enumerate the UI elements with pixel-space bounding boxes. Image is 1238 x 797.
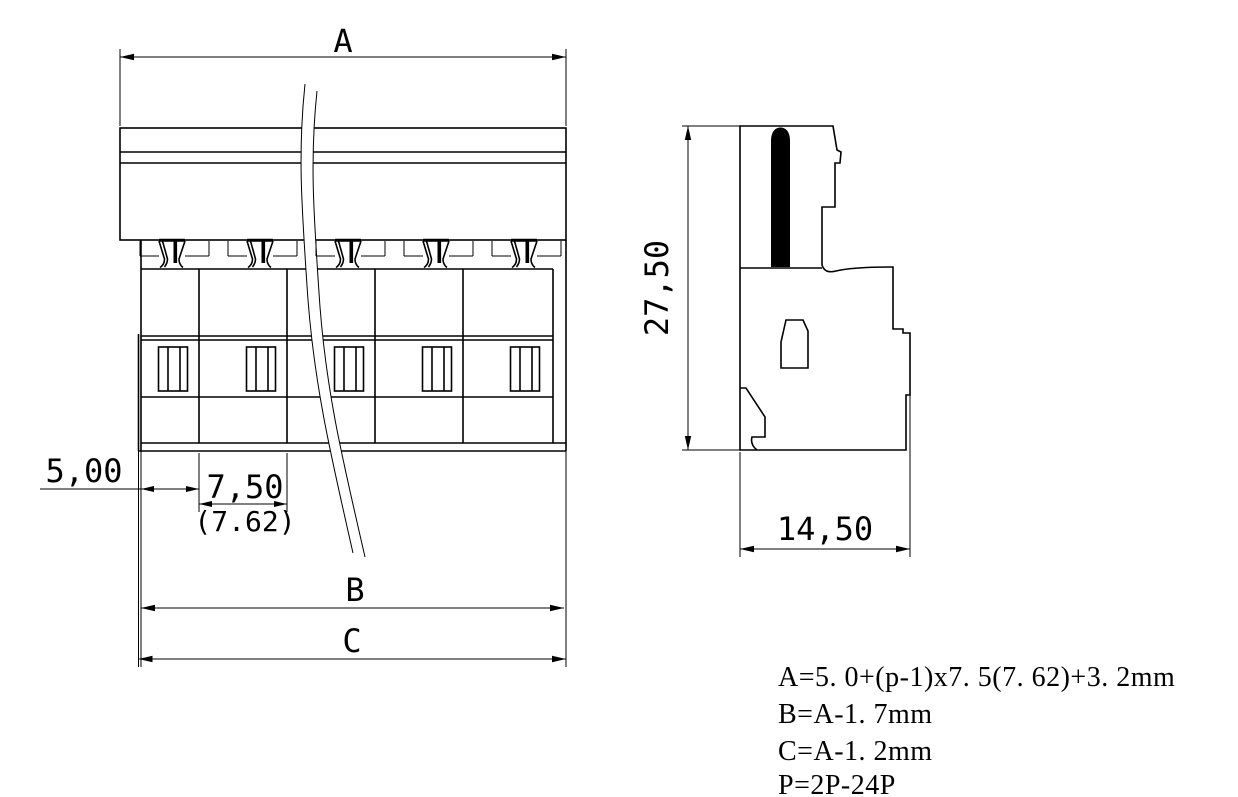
side-foot bbox=[740, 388, 765, 450]
front-body bbox=[139, 240, 567, 451]
dim-label-b: B bbox=[345, 571, 364, 609]
dim-label-c: C bbox=[342, 622, 361, 660]
dim-label-a: A bbox=[333, 22, 352, 60]
formula-line-c: C=A-1. 2mm bbox=[778, 736, 933, 767]
dim-label-5-00: 5,00 bbox=[45, 452, 122, 490]
dim-label-7-62: (7.62) bbox=[194, 505, 295, 538]
formula-notes: A=5. 0+(p-1)x7. 5(7. 62)+3. 2mm B=A-1. 7… bbox=[778, 662, 1175, 797]
wire-windows bbox=[159, 347, 540, 391]
front-housing bbox=[120, 128, 566, 240]
formula-line-a: A=5. 0+(p-1)x7. 5(7. 62)+3. 2mm bbox=[778, 662, 1175, 693]
dim-label-14-50: 14,50 bbox=[777, 510, 873, 548]
side-view bbox=[740, 126, 910, 450]
dimensions: A 5,00 7,50 (7.62) B C 27,50 14,50 bbox=[40, 22, 910, 667]
formula-line-b: B=A-1. 7mm bbox=[778, 699, 933, 730]
dim-label-7-50: 7,50 bbox=[206, 468, 283, 506]
side-cavity bbox=[781, 320, 808, 368]
side-outline bbox=[740, 126, 910, 450]
latch-row bbox=[140, 240, 561, 267]
connector-engineering-drawing: A 5,00 7,50 (7.62) B C 27,50 14,50 bbox=[0, 0, 1238, 797]
break-mask bbox=[301, 84, 365, 557]
formula-line-p: P=2P-24P bbox=[778, 770, 896, 797]
dim-label-27-50: 27,50 bbox=[638, 240, 676, 336]
side-contact-pin bbox=[771, 128, 790, 268]
front-view bbox=[120, 128, 566, 451]
